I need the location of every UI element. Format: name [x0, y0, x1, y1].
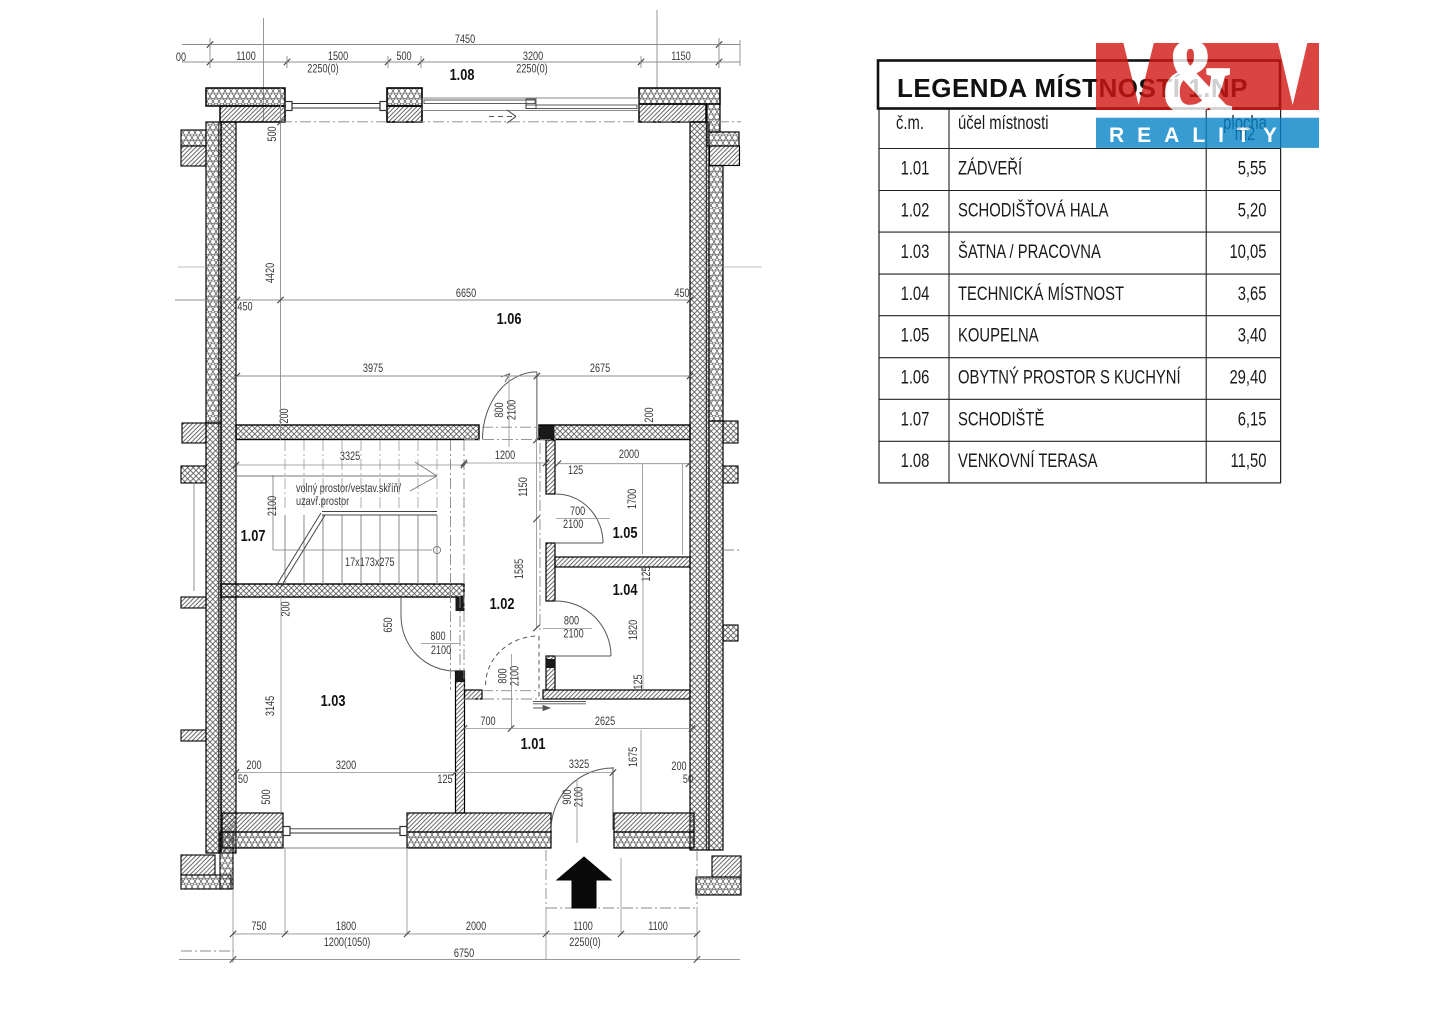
svg-text:REALITY: REALITY: [1109, 124, 1290, 147]
svg-text:500: 500: [266, 126, 280, 141]
svg-text:00: 00: [176, 51, 186, 65]
svg-text:2100: 2100: [563, 627, 583, 641]
svg-text:1100: 1100: [236, 50, 256, 64]
svg-text:3200: 3200: [523, 50, 543, 64]
svg-text:1.06: 1.06: [901, 367, 930, 388]
svg-text:200: 200: [246, 759, 261, 773]
svg-text:2100: 2100: [563, 518, 583, 532]
svg-text:750: 750: [251, 920, 266, 934]
svg-text:1585: 1585: [513, 559, 527, 579]
svg-text:1.05: 1.05: [901, 325, 930, 346]
svg-text:VENKOVNÍ TERASA: VENKOVNÍ TERASA: [958, 450, 1098, 471]
svg-text:2100: 2100: [508, 666, 522, 686]
svg-text:3200: 3200: [336, 759, 356, 773]
svg-text:125: 125: [568, 464, 583, 478]
svg-text:10,05: 10,05: [1229, 241, 1266, 262]
svg-text:1150: 1150: [517, 477, 531, 497]
svg-text:ZÁDVEŘÍ: ZÁDVEŘÍ: [958, 158, 1022, 179]
svg-text:700: 700: [480, 715, 495, 729]
svg-text:2100: 2100: [505, 400, 519, 420]
svg-text:450: 450: [674, 287, 689, 301]
svg-text:800: 800: [430, 630, 445, 644]
svg-text:1200: 1200: [495, 449, 515, 463]
svg-text:6,15: 6,15: [1238, 409, 1267, 430]
svg-text:2675: 2675: [590, 362, 610, 376]
svg-text:2625: 2625: [595, 715, 615, 729]
svg-text:1.03: 1.03: [321, 693, 346, 711]
svg-text:1700: 1700: [626, 489, 640, 509]
svg-text:17x173x275: 17x173x275: [345, 556, 395, 570]
svg-text:200: 200: [643, 407, 657, 422]
svg-text:volný prostor/vestav.skříň/: volný prostor/vestav.skříň/: [296, 482, 401, 496]
svg-text:SCHODIŠŤOVÁ HALA: SCHODIŠŤOVÁ HALA: [958, 200, 1109, 221]
svg-text:KOUPELNA: KOUPELNA: [958, 325, 1039, 346]
svg-text:1820: 1820: [627, 620, 641, 640]
svg-text:2100: 2100: [572, 787, 586, 807]
svg-text:1.05: 1.05: [613, 525, 638, 543]
svg-text:7450: 7450: [455, 33, 475, 47]
svg-text:1150: 1150: [671, 50, 691, 64]
svg-text:1675: 1675: [627, 747, 641, 767]
svg-text:650: 650: [382, 617, 396, 632]
svg-text:800: 800: [564, 614, 579, 628]
svg-text:3325: 3325: [569, 758, 589, 772]
svg-text:ŠATNA / PRACOVNA: ŠATNA / PRACOVNA: [958, 241, 1101, 262]
svg-text:3145: 3145: [264, 696, 278, 716]
svg-text:125: 125: [632, 674, 646, 689]
svg-text:800: 800: [493, 402, 507, 417]
svg-text:1200(1050): 1200(1050): [324, 936, 371, 950]
svg-text:450: 450: [237, 300, 252, 314]
svg-text:3325: 3325: [340, 450, 360, 464]
svg-text:500: 500: [260, 789, 274, 804]
svg-text:6750: 6750: [454, 947, 474, 961]
svg-text:125: 125: [437, 773, 452, 787]
svg-text:2000: 2000: [619, 448, 639, 462]
svg-text:50: 50: [238, 773, 248, 787]
svg-text:3,65: 3,65: [1238, 283, 1267, 304]
svg-text:50: 50: [683, 773, 693, 787]
svg-text:účel místnosti: účel místnosti: [958, 112, 1048, 133]
svg-text:5,20: 5,20: [1238, 200, 1267, 221]
svg-text:2250(0): 2250(0): [307, 62, 338, 76]
svg-text:200: 200: [671, 760, 686, 774]
svg-text:1.08: 1.08: [901, 450, 930, 471]
svg-text:2100: 2100: [431, 644, 451, 658]
svg-text:3975: 3975: [363, 362, 383, 376]
svg-text:1.01: 1.01: [901, 158, 930, 179]
svg-text:1.07: 1.07: [241, 528, 266, 546]
svg-text:1.03: 1.03: [901, 241, 930, 262]
svg-text:11,50: 11,50: [1231, 450, 1267, 471]
svg-text:6650: 6650: [456, 287, 476, 301]
svg-text:4420: 4420: [264, 263, 278, 283]
svg-text:5,55: 5,55: [1238, 158, 1267, 179]
svg-text:700: 700: [570, 505, 585, 519]
svg-text:500: 500: [396, 50, 411, 64]
svg-text:1.07: 1.07: [901, 409, 930, 430]
svg-text:1.02: 1.02: [901, 200, 930, 221]
svg-text:TECHNICKÁ MÍSTNOST: TECHNICKÁ MÍSTNOST: [958, 283, 1124, 304]
svg-text:1800: 1800: [336, 920, 356, 934]
svg-text:2250(0): 2250(0): [569, 936, 600, 950]
svg-text:1.04: 1.04: [613, 582, 638, 600]
svg-text:1.04: 1.04: [901, 283, 930, 304]
svg-text:OBYTNÝ PROSTOR S KUCHYNÍ: OBYTNÝ PROSTOR S KUCHYNÍ: [958, 367, 1181, 388]
svg-text:125: 125: [640, 566, 654, 581]
svg-text:č.m.: č.m.: [896, 112, 924, 133]
svg-text:1100: 1100: [573, 920, 593, 934]
svg-text:uzavř.prostor: uzavř.prostor: [296, 495, 350, 509]
svg-text:200: 200: [278, 408, 292, 423]
svg-text:SCHODIŠTĚ: SCHODIŠTĚ: [958, 409, 1044, 430]
svg-text:1100: 1100: [648, 920, 668, 934]
svg-text:2100: 2100: [266, 496, 280, 516]
svg-text:1.02: 1.02: [490, 596, 515, 614]
svg-text:1.08: 1.08: [450, 67, 475, 85]
svg-text:2250(0): 2250(0): [516, 62, 547, 76]
svg-text:29,40: 29,40: [1229, 367, 1266, 388]
svg-text:1500: 1500: [328, 50, 348, 64]
svg-text:3,40: 3,40: [1238, 325, 1267, 346]
svg-text:&: &: [1161, 18, 1235, 133]
svg-text:2000: 2000: [466, 920, 486, 934]
svg-text:1.01: 1.01: [521, 736, 546, 754]
svg-text:1.06: 1.06: [497, 311, 522, 329]
